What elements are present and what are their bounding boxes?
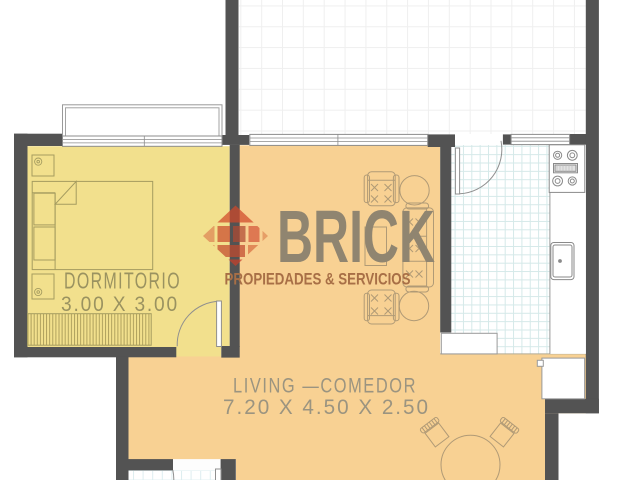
svg-text:7.20 X 4.50 X 2.50: 7.20 X 4.50 X 2.50 — [223, 396, 430, 419]
svg-text:BRICK: BRICK — [277, 195, 435, 278]
svg-text:PROPIEDADES & SERVICIOS: PROPIEDADES & SERVICIOS — [225, 270, 411, 289]
svg-text:LIVING —COMEDOR: LIVING —COMEDOR — [233, 375, 417, 398]
svg-text:3.00 X 3.00: 3.00 X 3.00 — [61, 293, 179, 316]
svg-text:DORMITORIO: DORMITORIO — [64, 268, 181, 294]
